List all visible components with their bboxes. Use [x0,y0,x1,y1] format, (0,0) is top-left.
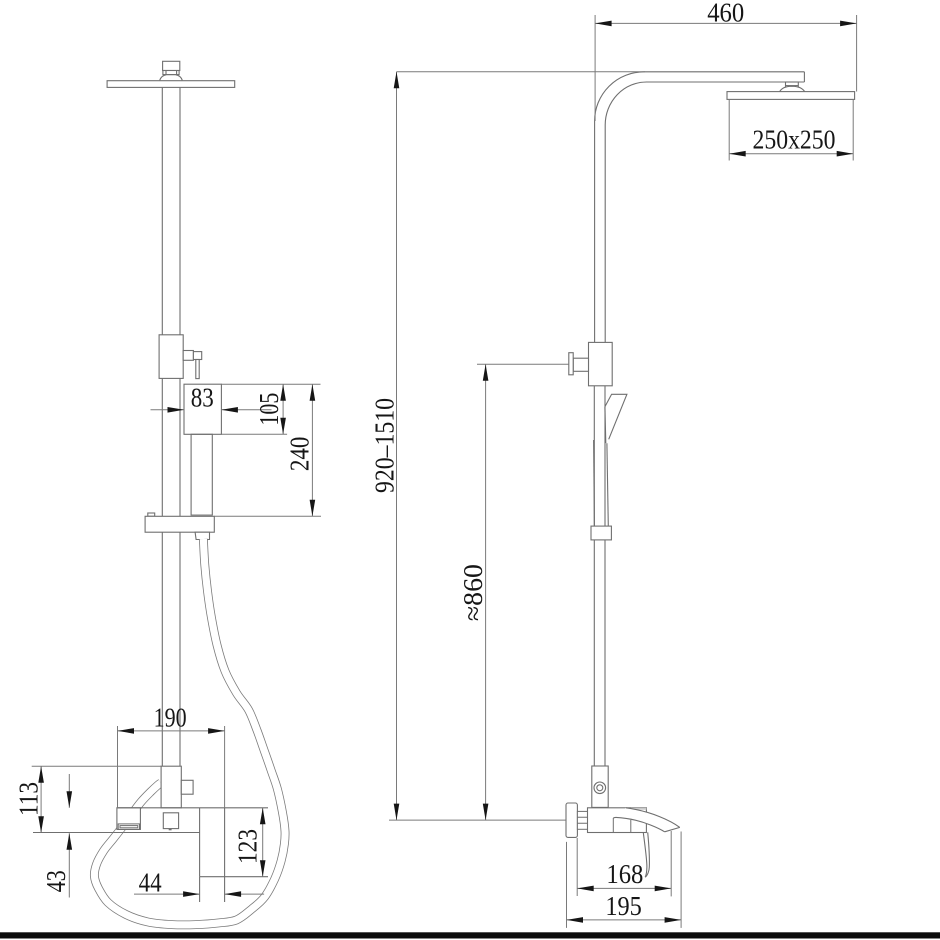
svg-text:240: 240 [285,437,315,472]
svg-text:83: 83 [191,382,214,412]
svg-text:44: 44 [139,867,162,897]
svg-text:≈860: ≈860 [458,564,488,621]
svg-text:168: 168 [606,859,643,889]
svg-text:920–1510: 920–1510 [369,398,399,493]
svg-text:43: 43 [41,870,71,892]
svg-text:250x250: 250x250 [753,125,836,155]
svg-text:460: 460 [707,0,744,27]
svg-text:105: 105 [254,393,284,426]
svg-text:123: 123 [233,829,263,864]
svg-text:190: 190 [154,702,187,732]
svg-text:113: 113 [14,782,44,816]
svg-text:195: 195 [605,891,642,921]
